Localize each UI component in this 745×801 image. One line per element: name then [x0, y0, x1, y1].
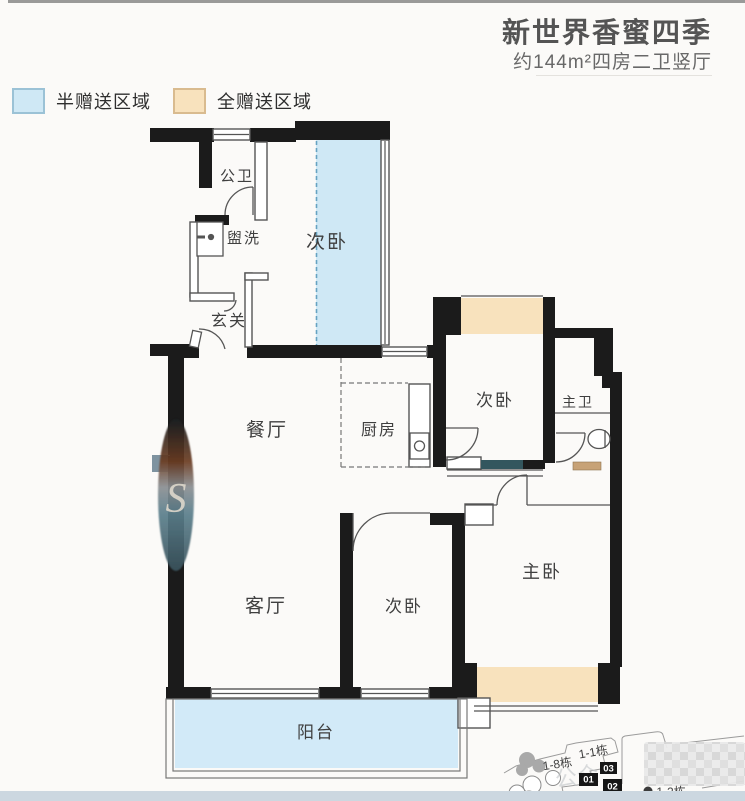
room-label-living: 客厅 [245, 595, 287, 617]
room-labels: 公卫 盥洗 次卧 玄关 餐厅 厨房 次卧 主卫 客厅 次卧 主卧 阳台 [211, 168, 594, 742]
unit-label-02: 02 [607, 782, 618, 793]
room-label-dining: 餐厅 [246, 419, 288, 441]
photo-bottom-strip [0, 791, 745, 801]
toilet-icon [588, 430, 610, 449]
room-label-bedroom-east: 次卧 [476, 391, 514, 410]
watermark-letter: S [166, 476, 187, 522]
room-label-kitchen: 厨房 [361, 421, 397, 439]
door-bedroom-south [353, 513, 391, 551]
floorplan-screenshot: 新世界香蜜四季 约144m²四房二卫竖厅 半赠送区域 全赠送区域 [0, 0, 745, 801]
door-kitchen-hall [446, 428, 478, 460]
foyer-partition-v [245, 273, 252, 347]
door-master-bath [556, 433, 585, 462]
room-label-master-bath: 主卫 [562, 394, 594, 410]
room-label-public-bathroom: 公卫 [220, 168, 254, 185]
sliding-door-bedroom-east [481, 460, 523, 469]
blurred-watermark-mosaic [644, 742, 745, 786]
washroom-ledge [190, 293, 234, 301]
building-label-1-1: 1-1栋 [577, 742, 609, 762]
door-sill [573, 462, 601, 470]
trees-gray [516, 752, 546, 776]
unit-label-03: 03 [603, 764, 614, 775]
washbasin-drain-icon [209, 235, 214, 240]
site-plan: 公众 1-8栋 1-1栋 1-2栋 03 01 02 [504, 732, 745, 801]
door-leaf-entrance [189, 330, 201, 348]
room-label-bedroom-south: 次卧 [385, 597, 423, 616]
full-gift-area-bedroom-east [461, 298, 543, 334]
room-label-foyer: 玄关 [211, 312, 247, 330]
sliding-door-pocket [447, 457, 481, 469]
watermark-logo: S [158, 419, 194, 571]
unit-label-01: 01 [583, 775, 594, 786]
full-gift-area-master-bay [474, 667, 598, 702]
door-entrance [199, 329, 225, 349]
door-public-bath [225, 187, 253, 215]
duct-box [465, 504, 493, 525]
room-label-master-bedroom: 主卧 [522, 562, 562, 582]
wall-door-frame [255, 142, 267, 220]
room-label-balcony: 阳台 [297, 723, 335, 742]
kitchen-sink-bowl [415, 441, 425, 451]
room-label-bedroom-north: 次卧 [306, 231, 348, 253]
door-master-bedroom [497, 475, 527, 505]
foyer-partition-h [245, 273, 268, 280]
floorplan-drawing: 公卫 盥洗 次卧 玄关 餐厅 厨房 次卧 主卫 客厅 次卧 主卧 阳台 S [0, 0, 745, 801]
balcony-step [458, 698, 490, 728]
room-label-washroom: 盥洗 [227, 230, 261, 247]
